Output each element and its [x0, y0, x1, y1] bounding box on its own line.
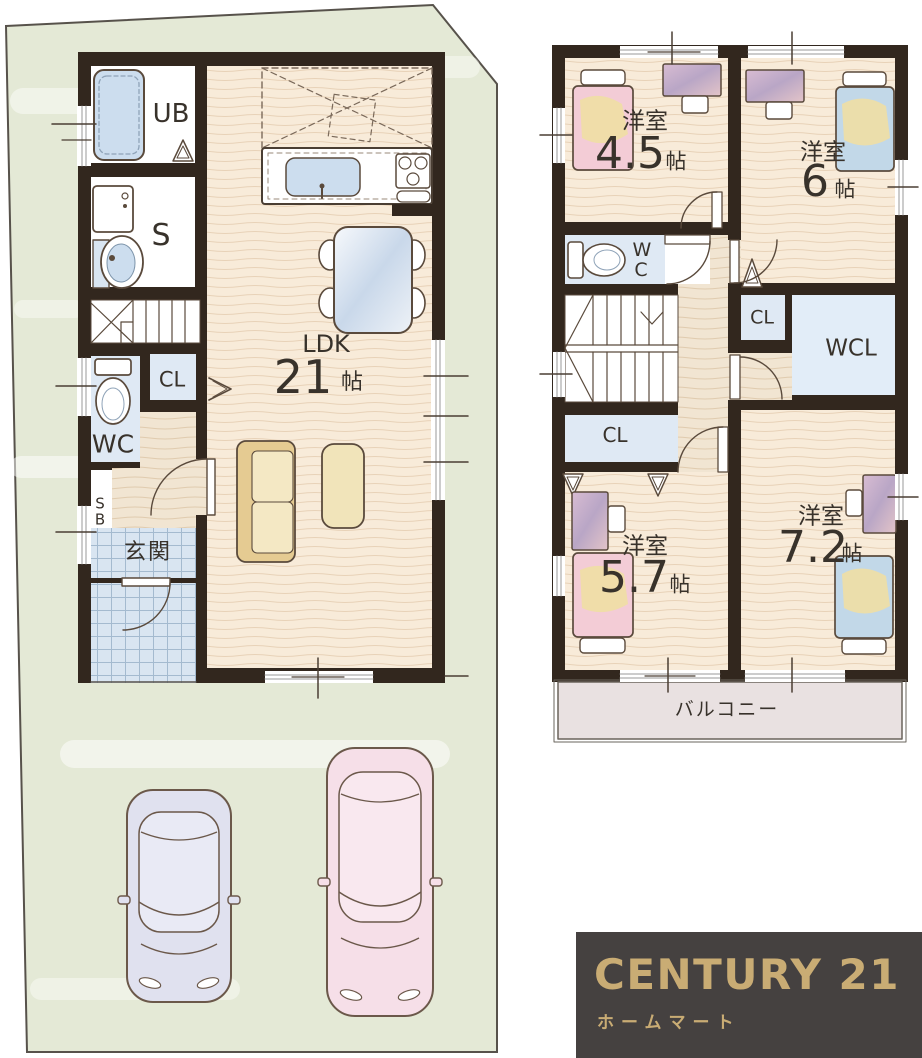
dining-set — [319, 227, 425, 333]
label-room-c-size: 5.7 — [599, 556, 669, 600]
toilet-1f — [95, 359, 131, 424]
label-wcl: WCL — [825, 338, 877, 361]
brand-name: CENTURY 21 — [594, 950, 900, 999]
label-closet-mid: CL — [750, 309, 774, 328]
bathtub — [94, 70, 144, 160]
porch-tile — [91, 583, 196, 683]
label-balcony: バルコニー — [675, 701, 780, 720]
label-room-d-size: 7.2 — [778, 526, 848, 570]
century21-logo: CENTURY 21 ホームマート — [576, 932, 922, 1058]
label-room-c-unit: 帖 — [670, 575, 691, 596]
dining-table — [334, 227, 412, 333]
car-left — [118, 790, 240, 1002]
hallway-1f-floor-b — [112, 468, 140, 528]
ottoman — [322, 444, 364, 528]
label-ldk-unit: 帖 — [341, 372, 363, 394]
label-shoebox: SB — [94, 496, 107, 528]
floorplan-1f — [52, 52, 468, 698]
label-wc-1f: WC — [92, 432, 134, 457]
label-room-b-size: 6 — [801, 160, 829, 204]
label-room-b-unit: 帖 — [835, 180, 856, 201]
window — [553, 556, 565, 596]
floorplan-page: UB S CL WC SB 玄関 LDK 21 帖 洋室 4.5 帖 洋室 6 … — [0, 0, 922, 1058]
label-closet-1f: CL — [159, 370, 185, 391]
label-closet-low: CL — [602, 425, 627, 445]
label-wc-2f: WC — [633, 241, 650, 281]
label-ub: UB — [153, 101, 190, 127]
door-gap-hall-ldk — [196, 459, 207, 515]
toilet-2f — [568, 242, 625, 278]
sofa — [237, 441, 295, 562]
label-room-d-unit: 帖 — [842, 544, 863, 565]
car-right — [318, 748, 442, 1016]
label-room-a-size: 4.5 — [595, 132, 665, 176]
company-name: ホームマート — [597, 1008, 741, 1033]
washing-machine — [93, 186, 133, 232]
label-entrance: 玄関 — [124, 542, 172, 564]
label-room-a-unit: 帖 — [666, 152, 687, 173]
label-ldk-size: 21 — [274, 354, 333, 400]
hallway-1f-floor — [140, 412, 196, 528]
wash-basin — [93, 236, 143, 288]
label-sanitary: S — [151, 221, 170, 251]
